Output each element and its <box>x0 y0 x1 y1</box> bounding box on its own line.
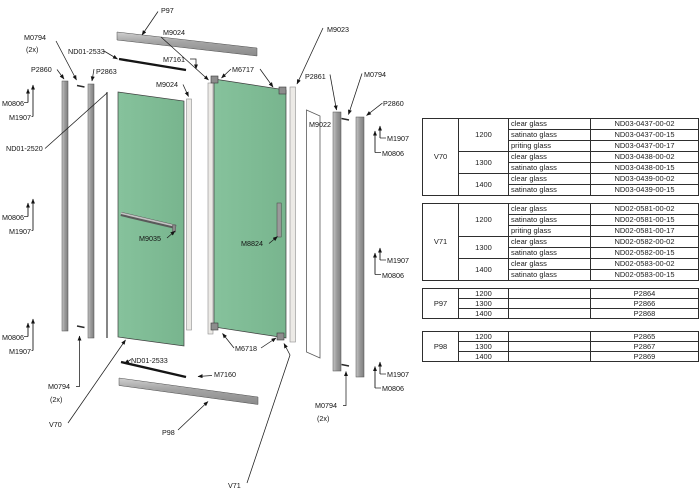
table-row: V701200clear glassND03-0437-00-02 <box>423 119 699 130</box>
part-number-cell: ND02-0582-00-02 <box>591 237 699 248</box>
label-v71: V71 <box>228 481 241 490</box>
glass-type-cell <box>509 289 591 299</box>
label-m1907: M1907 <box>9 113 31 122</box>
parts-table-container-p97: P971200P28641300P28661400P2868 <box>422 288 699 319</box>
screw-arrows <box>24 85 386 388</box>
part-number-cell: P2864 <box>591 289 699 299</box>
glass-type-cell: clear glass <box>509 259 591 270</box>
part-number-cell: ND02-0583-00-02 <box>591 259 699 270</box>
part-number-cell: ND03-0437-00-02 <box>591 119 699 130</box>
label-m0806: M0806 <box>2 333 24 342</box>
label-m0794: M0794 <box>24 33 46 42</box>
size-cell: 1400 <box>459 259 509 281</box>
parts-table-container-p98: P981200P28651300P28671400P2869 <box>422 331 699 362</box>
glass-type-cell: clear glass <box>509 152 591 163</box>
label-v70: V70 <box>49 420 62 429</box>
group-cell: P97 <box>423 289 459 319</box>
label-m1907: M1907 <box>387 134 409 143</box>
parts-table-p98: P981200P28651300P28671400P2869 <box>422 331 699 362</box>
part-number-cell: ND02-0581-00-02 <box>591 204 699 215</box>
part-number-cell: ND03-0439-00-15 <box>591 185 699 196</box>
parts-table-container-v70: V701200clear glassND03-0437-00-02satinat… <box>422 118 699 196</box>
size-cell: 1300 <box>459 342 509 352</box>
label-p2861: P2861 <box>305 72 326 81</box>
glass-type-cell: priting glass <box>509 226 591 237</box>
part-number-cell: ND03-0438-00-02 <box>591 152 699 163</box>
size-cell: 1300 <box>459 152 509 174</box>
label-m9024: M9024 <box>163 28 185 37</box>
label-m9035: M9035 <box>139 234 161 243</box>
label-m0806: M0806 <box>382 384 404 393</box>
parts-table-p97: P971200P28641300P28661400P2868 <box>422 288 699 319</box>
glass-type-cell <box>509 352 591 362</box>
top-rail-p97 <box>117 32 257 56</box>
label-m6717: M6717 <box>232 65 254 74</box>
table-row: V711200clear glassND02-0581-00-02 <box>423 204 699 215</box>
table-row: P981200P2865 <box>423 332 699 342</box>
wall-profile-p2860-left <box>62 81 68 331</box>
label-p2860: P2860 <box>383 99 404 108</box>
parts-table-container-v71: V711200clear glassND02-0581-00-02satinat… <box>422 203 699 281</box>
label-m0794: M0794 <box>48 382 70 391</box>
profile-p2861 <box>333 112 341 371</box>
glass-type-cell <box>509 332 591 342</box>
label-nd01-2520: ND01-2520 <box>6 144 43 153</box>
label-m0806: M0806 <box>2 99 24 108</box>
label-m0794: M0794 <box>364 70 386 79</box>
parts-table-v71: V711200clear glassND02-0581-00-02satinat… <box>422 203 699 281</box>
part-number-cell: P2867 <box>591 342 699 352</box>
label-m0806: M0806 <box>382 149 404 158</box>
glass-type-cell: clear glass <box>509 174 591 185</box>
part-number-cell: ND03-0437-00-15 <box>591 130 699 141</box>
glass-type-cell <box>509 342 591 352</box>
wall-profile-p2860-right <box>356 117 364 377</box>
table-row: 1400clear glassND03-0439-00-02 <box>423 174 699 185</box>
size-cell: 1200 <box>459 119 509 152</box>
table-row: P971200P2864 <box>423 289 699 299</box>
towel-bar-bracket <box>173 225 176 232</box>
glass-type-cell: satinato glass <box>509 215 591 226</box>
glass-panel-v71 <box>214 79 286 338</box>
label-m9023: M9023 <box>327 25 349 34</box>
size-cell: 1400 <box>459 352 509 362</box>
glass-type-cell: clear glass <box>509 237 591 248</box>
label-m8824: M8824 <box>241 239 263 248</box>
part-number-cell: ND03-0437-00-17 <box>591 141 699 152</box>
label-m9024: M9024 <box>156 80 178 89</box>
seal-profile-m9024-a <box>187 99 192 330</box>
part-number-cell: P2866 <box>591 299 699 309</box>
group-cell: V70 <box>423 119 459 196</box>
part-number-cell: P2869 <box>591 352 699 362</box>
glass-type-cell: clear glass <box>509 204 591 215</box>
size-cell: 1200 <box>459 289 509 299</box>
label-p98: P98 <box>162 428 175 437</box>
label-m1907: M1907 <box>387 370 409 379</box>
part-number-cell: P2865 <box>591 332 699 342</box>
label-p97: P97 <box>161 6 174 15</box>
glass-type-cell: priting glass <box>509 141 591 152</box>
label-m1907: M1907 <box>387 256 409 265</box>
glass-type-cell <box>509 299 591 309</box>
size-cell: 1300 <box>459 299 509 309</box>
label-m0806: M0806 <box>2 213 24 222</box>
exploded-assembly-diagram: P97 M0794 (2x) ND01-2533 M7161 P2860 P28… <box>0 0 422 492</box>
label-nd01-2533: ND01-2533 <box>131 356 168 365</box>
label-qty-2x: (2x) <box>26 45 38 54</box>
glass-type-cell: satinato glass <box>509 270 591 281</box>
table-row: 1300P2866 <box>423 299 699 309</box>
glass-type-cell: satinato glass <box>509 163 591 174</box>
label-m1907: M1907 <box>9 227 31 236</box>
table-row: 1400clear glassND02-0583-00-02 <box>423 259 699 270</box>
glass-type-cell: satinato glass <box>509 185 591 196</box>
group-cell: P98 <box>423 332 459 362</box>
label-m9022: M9022 <box>309 120 331 129</box>
profile-p2863 <box>88 84 94 338</box>
size-cell: 1400 <box>459 174 509 196</box>
label-qty-2x: (2x) <box>317 414 329 423</box>
label-qty-2x: (2x) <box>50 395 62 404</box>
table-row: 1300clear glassND03-0438-00-02 <box>423 152 699 163</box>
label-m1907: M1907 <box>9 347 31 356</box>
glass-type-cell: satinato glass <box>509 248 591 259</box>
table-row: 1400P2869 <box>423 352 699 362</box>
part-number-cell: ND03-0439-00-02 <box>591 174 699 185</box>
size-cell: 1200 <box>459 332 509 342</box>
table-row: 1400P2868 <box>423 309 699 319</box>
table-row: 1300P2867 <box>423 342 699 352</box>
label-m7160: M7160 <box>214 370 236 379</box>
seal-profile-m9023 <box>290 87 296 342</box>
label-m0794: M0794 <box>315 401 337 410</box>
label-m0806: M0806 <box>382 271 404 280</box>
group-cell: V71 <box>423 204 459 281</box>
part-number-cell: ND02-0582-00-15 <box>591 248 699 259</box>
label-p2860: P2860 <box>31 65 52 74</box>
exploded-view-page: P97 M0794 (2x) ND01-2533 M7161 P2860 P28… <box>0 0 700 492</box>
glass-type-cell <box>509 309 591 319</box>
size-cell: 1300 <box>459 237 509 259</box>
glass-type-cell: satinato glass <box>509 130 591 141</box>
label-m7161: M7161 <box>163 55 185 64</box>
label-nd01-2533: ND01-2533 <box>68 47 105 56</box>
seal-profile-m9024-b <box>208 83 213 334</box>
part-number-cell: P2868 <box>591 309 699 319</box>
part-number-cell: ND02-0581-00-15 <box>591 215 699 226</box>
label-m6718: M6718 <box>235 344 257 353</box>
door-handle-m8824 <box>277 203 281 237</box>
parts-table-v70: V701200clear glassND03-0437-00-02satinat… <box>422 118 699 196</box>
label-p2863: P2863 <box>96 67 117 76</box>
glass-type-cell: clear glass <box>509 119 591 130</box>
part-number-cell: ND02-0581-00-17 <box>591 226 699 237</box>
part-number-cell: ND02-0583-00-15 <box>591 270 699 281</box>
size-cell: 1400 <box>459 309 509 319</box>
profile-outline-m9022 <box>307 110 321 358</box>
bottom-rail-p98 <box>119 378 258 405</box>
part-number-cell: ND03-0438-00-15 <box>591 163 699 174</box>
table-row: 1300clear glassND02-0582-00-02 <box>423 237 699 248</box>
size-cell: 1200 <box>459 204 509 237</box>
